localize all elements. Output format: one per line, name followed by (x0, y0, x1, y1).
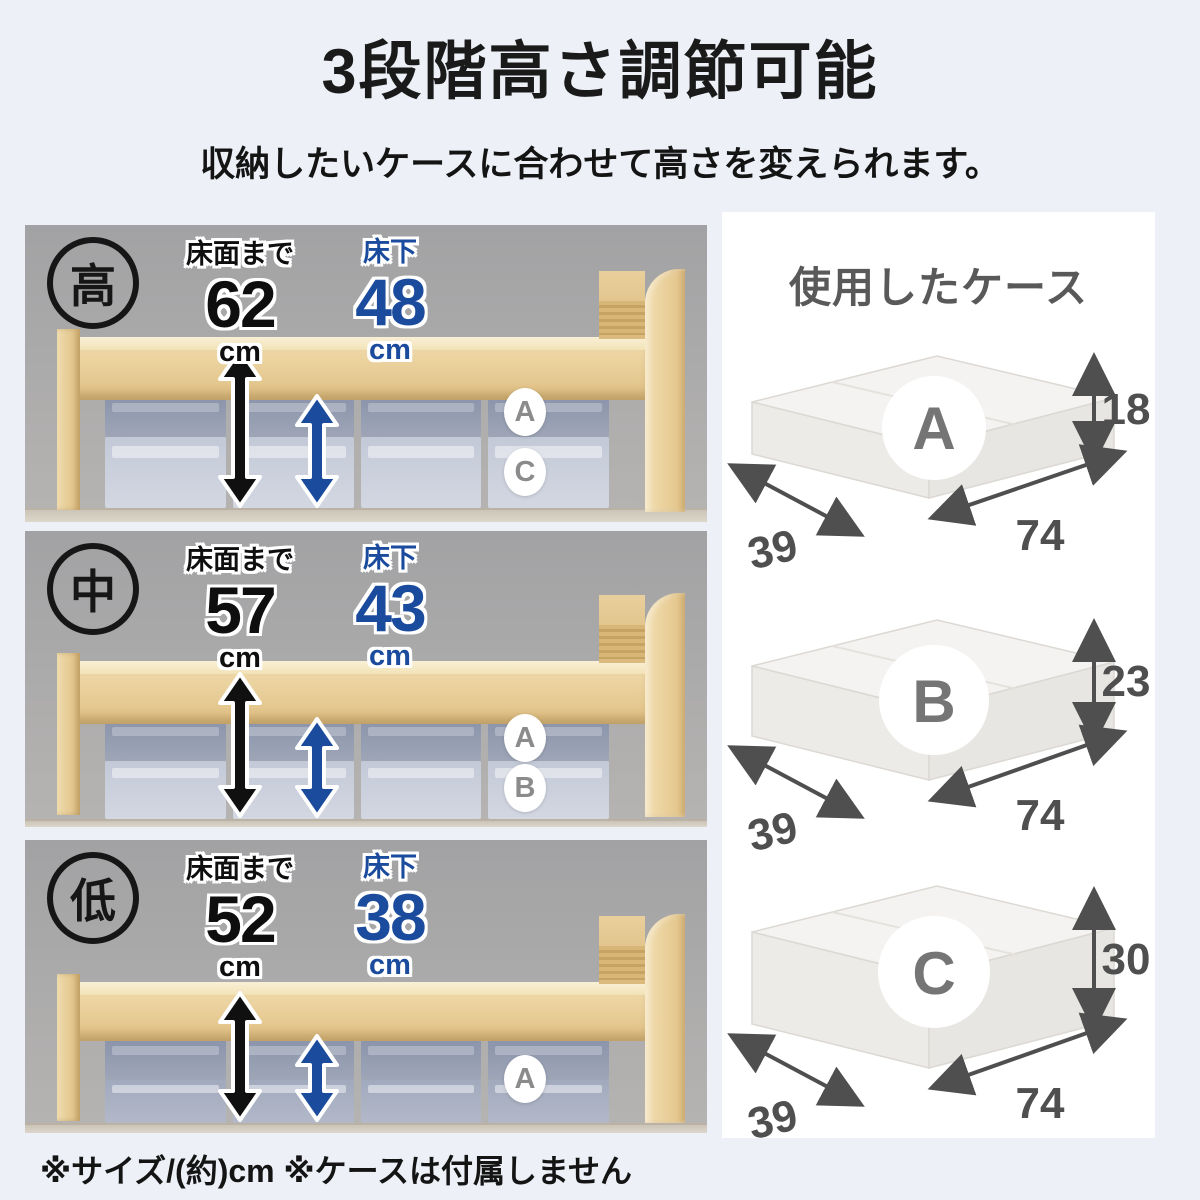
measure-label: 床面まで (173, 856, 307, 883)
floor (25, 819, 707, 827)
floor-height-arrow (218, 347, 262, 509)
floor-height-measurement: 床面まで 57 cm (173, 547, 307, 673)
case-diagram-A: A 18 74 39 (722, 320, 1155, 575)
storage-case-front (105, 437, 226, 508)
height-badge-low: 低 (47, 852, 139, 944)
measure-unit: cm (323, 951, 457, 980)
measure-label: 床下 (323, 545, 457, 572)
case-width: 74 (1016, 1079, 1065, 1128)
headboard-shelf (599, 271, 645, 339)
floor (25, 1123, 707, 1133)
storage-case-front (361, 395, 482, 437)
case-tag-letter: B (515, 772, 536, 805)
underbed-clearance-arrow (295, 1033, 339, 1123)
underbed-clearance-measurement: 床下 38 cm (323, 854, 457, 980)
underbed-clearance-arrow (295, 393, 339, 509)
page-subtitle: 収納したいケースに合わせて高さを変えられます。 (0, 136, 1200, 187)
page-title: 3段階高さ調節可能 (0, 38, 1200, 107)
floor-height-measurement: 床面まで 62 cm (173, 241, 307, 367)
storage-case-front (361, 1080, 482, 1123)
case-tag-letter: A (515, 1063, 536, 1096)
measure-value: 52 (173, 886, 307, 952)
bed-side-rail (63, 674, 649, 724)
depth-dim-arrow (736, 750, 856, 814)
bed-left-post (57, 329, 80, 510)
cases-used-card: 使用したケース A 18 74 39 (722, 212, 1155, 1138)
storage-case-front (105, 1080, 226, 1123)
infographic-page: 3段階高さ調節可能 収納したいケースに合わせて高さを変えられます。 A C (0, 0, 1200, 1200)
floor-height-arrow (218, 671, 262, 819)
case-tag: B (504, 764, 546, 812)
headboard-shelf (599, 595, 645, 663)
storage-case-front (361, 719, 482, 761)
floor (25, 508, 707, 522)
case-letter: A (912, 395, 955, 462)
case-tag: A (504, 388, 546, 436)
headboard-upright (645, 269, 685, 512)
underbed-clearance-arrow (295, 716, 339, 819)
measure-unit: cm (173, 953, 307, 982)
storage-case-front (105, 761, 226, 819)
bed-photo-panel-high: A C 高 床面まで 62 cm 床下 48 cm (25, 225, 707, 522)
storage-case-front (105, 395, 226, 437)
headboard-upright (645, 914, 685, 1123)
case-depth: 39 (743, 1090, 802, 1138)
measure-value: 62 (173, 271, 307, 337)
case-tag: A (504, 1055, 546, 1103)
badge-label: 中 (70, 556, 116, 622)
storage-case-front (361, 1038, 482, 1080)
headboard-shelf (599, 916, 645, 984)
case-tag: A (504, 714, 546, 762)
measure-value: 57 (173, 577, 307, 643)
case-diagram-B: B 23 74 39 (722, 584, 1155, 852)
headboard-upright (645, 593, 685, 817)
measure-unit: cm (173, 338, 307, 367)
measure-value: 48 (323, 269, 457, 335)
measure-value: 43 (323, 575, 457, 641)
case-depth: 39 (743, 802, 802, 852)
case-height: 23 (1102, 657, 1151, 706)
height-badge-high: 高 (47, 237, 139, 329)
cases-used-heading: 使用したケース (722, 254, 1155, 315)
case-diagram-C: C 30 74 39 (722, 850, 1155, 1138)
case-width: 74 (1016, 511, 1065, 560)
underbed-clearance-measurement: 床下 48 cm (323, 239, 457, 365)
bed-left-post (57, 653, 80, 815)
bed-photo-panel-low: A 低 床面まで 52 cm 床下 38 cm (25, 840, 707, 1133)
storage-case-front (361, 437, 482, 508)
case-width: 74 (1016, 791, 1065, 840)
measure-label: 床面まで (173, 241, 307, 268)
depth-dim-arrow (736, 1038, 856, 1102)
storage-case-front (105, 719, 226, 761)
case-letter: C (912, 940, 955, 1007)
case-height: 30 (1102, 935, 1151, 984)
measure-unit: cm (173, 644, 307, 673)
height-badge-middle: 中 (47, 543, 139, 635)
size-footnote: ※サイズ/(約)cm ※ケースは付属しません (40, 1146, 632, 1192)
case-letter: B (912, 668, 955, 735)
measure-label: 床面まで (173, 547, 307, 574)
case-height: 18 (1102, 385, 1151, 434)
measure-value: 38 (323, 884, 457, 950)
badge-label: 低 (70, 865, 116, 931)
floor-height-arrow (218, 990, 262, 1123)
storage-case-front (361, 761, 482, 819)
bed-deck-surface (63, 982, 649, 995)
storage-case-front (105, 1038, 226, 1080)
case-depth: 39 (743, 520, 802, 575)
case-tag-letter: C (515, 456, 536, 489)
case-tag-letter: A (515, 722, 536, 755)
floor-height-measurement: 床面まで 52 cm (173, 856, 307, 982)
measure-label: 床下 (323, 239, 457, 266)
measure-label: 床下 (323, 854, 457, 881)
bed-left-post (57, 974, 80, 1121)
bed-side-rail (63, 995, 649, 1041)
case-tag: C (504, 448, 546, 496)
badge-label: 高 (70, 250, 116, 316)
case-tag-letter: A (515, 396, 536, 429)
bed-photo-panel-middle: A B 中 床面まで 57 cm 床下 43 cm (25, 531, 707, 827)
depth-dim-arrow (736, 468, 856, 532)
measure-unit: cm (323, 336, 457, 365)
underbed-clearance-measurement: 床下 43 cm (323, 545, 457, 671)
measure-unit: cm (323, 642, 457, 671)
